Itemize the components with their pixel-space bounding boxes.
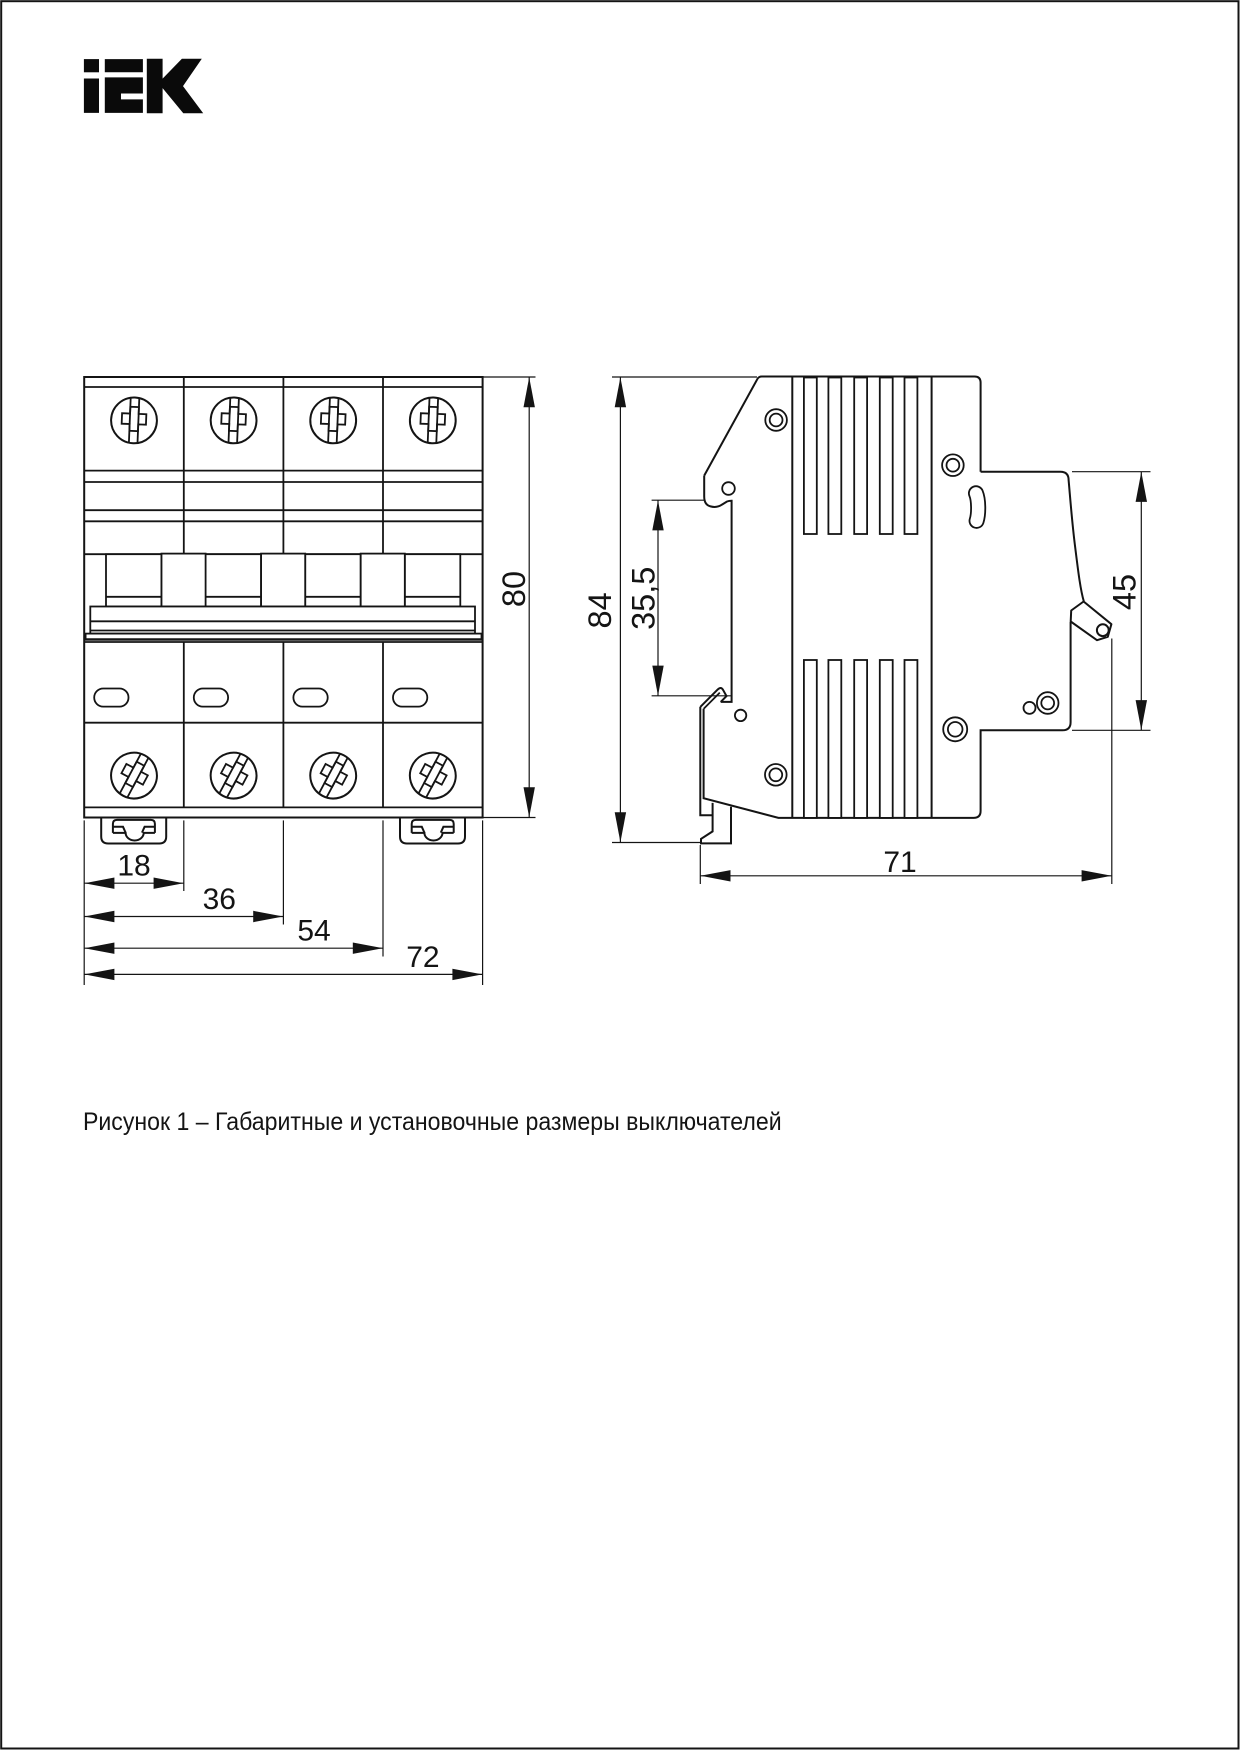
svg-text:18: 18 [117, 850, 150, 883]
svg-text:Рисунок 1 – Габаритные и устан: Рисунок 1 – Габаритные и установочные ра… [83, 1108, 782, 1136]
svg-text:45: 45 [1107, 574, 1143, 610]
svg-text:80: 80 [496, 571, 532, 607]
svg-text:72: 72 [406, 941, 439, 974]
svg-text:35,5: 35,5 [625, 567, 661, 630]
svg-text:36: 36 [203, 883, 236, 916]
svg-text:71: 71 [883, 846, 916, 879]
svg-text:84: 84 [582, 592, 618, 628]
svg-text:54: 54 [297, 915, 330, 948]
